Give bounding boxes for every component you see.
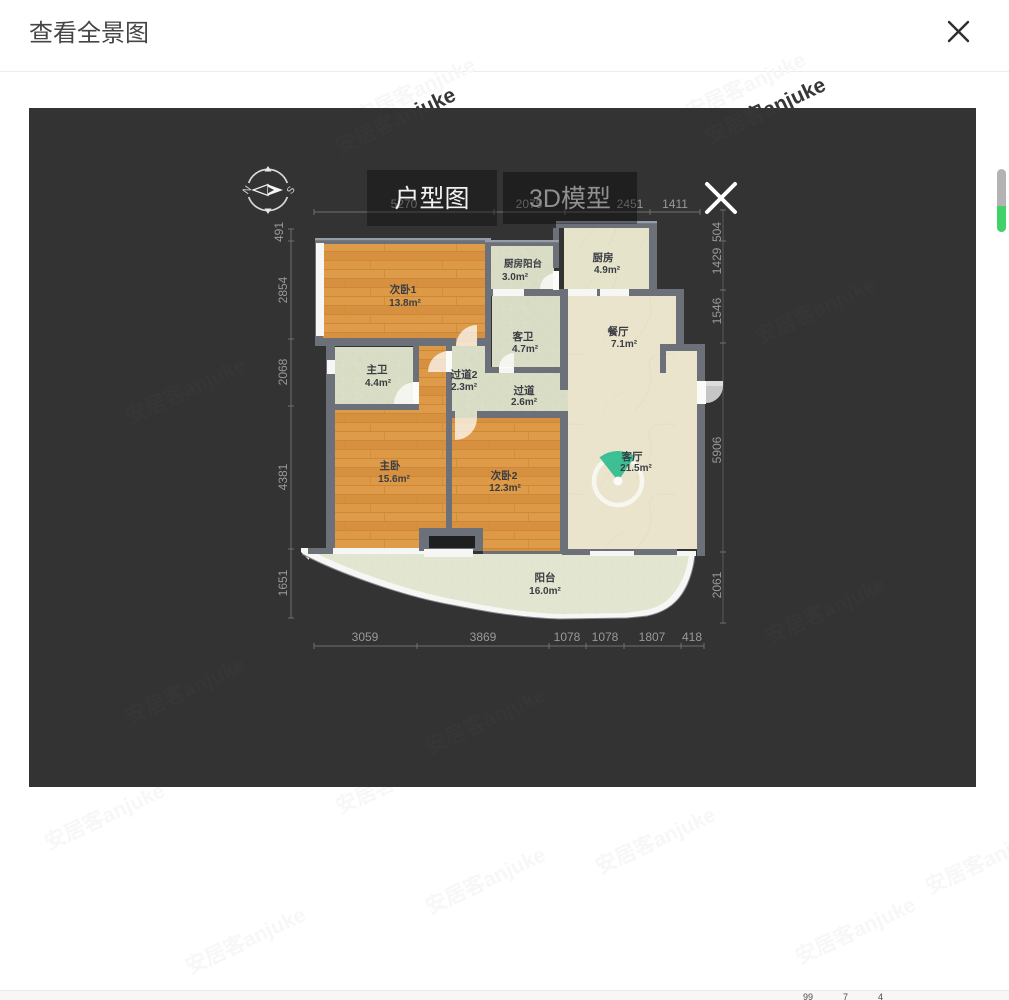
- svg-text:3869: 3869: [470, 630, 497, 644]
- svg-text:1411: 1411: [662, 197, 688, 211]
- svg-text:2068: 2068: [276, 358, 290, 385]
- svg-text:餐厅: 餐厅: [607, 325, 629, 338]
- svg-text:4381: 4381: [276, 463, 290, 490]
- svg-text:4.4m²: 4.4m²: [365, 378, 392, 389]
- svg-text:主卫: 主卫: [367, 363, 388, 376]
- svg-text:491: 491: [272, 222, 286, 242]
- svg-text:12.3m²: 12.3m²: [489, 483, 521, 494]
- svg-text:7.1m²: 7.1m²: [611, 339, 638, 350]
- svg-text:厨房: 厨房: [593, 251, 614, 264]
- svg-text:1429: 1429: [710, 247, 724, 274]
- svg-text:客厅: 客厅: [621, 450, 643, 463]
- svg-text:次卧1: 次卧1: [390, 283, 417, 296]
- svg-text:5906: 5906: [710, 436, 724, 463]
- svg-text:阳台: 阳台: [535, 571, 556, 584]
- svg-text:1078: 1078: [554, 630, 581, 644]
- svg-text:2.6m²: 2.6m²: [511, 397, 538, 408]
- svg-text:99: 99: [803, 992, 813, 1000]
- svg-text:4: 4: [878, 992, 883, 1000]
- svg-text:7: 7: [843, 992, 848, 1000]
- svg-text:次卧2: 次卧2: [491, 469, 518, 482]
- svg-text:2854: 2854: [276, 276, 290, 303]
- svg-text:4.7m²: 4.7m²: [512, 344, 539, 355]
- svg-text:1807: 1807: [639, 630, 666, 644]
- svg-text:1546: 1546: [710, 297, 724, 324]
- svg-text:过道: 过道: [514, 384, 535, 397]
- svg-text:过道2: 过道2: [451, 368, 478, 381]
- svg-text:户型图: 户型图: [394, 185, 469, 213]
- svg-text:2.3m²: 2.3m²: [451, 382, 478, 393]
- svg-text:504: 504: [710, 222, 724, 242]
- svg-text:2061: 2061: [710, 571, 724, 598]
- svg-text:查看全景图: 查看全景图: [29, 20, 149, 47]
- svg-text:418: 418: [682, 630, 702, 644]
- svg-text:3.0m²: 3.0m²: [502, 272, 529, 283]
- svg-text:1651: 1651: [276, 569, 290, 596]
- svg-text:15.6m²: 15.6m²: [378, 474, 410, 485]
- svg-text:3D模型: 3D模型: [529, 185, 611, 213]
- svg-text:4.9m²: 4.9m²: [594, 265, 621, 276]
- svg-text:主卧: 主卧: [380, 459, 401, 472]
- svg-text:3059: 3059: [352, 630, 379, 644]
- svg-text:厨房阳台: 厨房阳台: [504, 258, 543, 270]
- svg-text:1078: 1078: [592, 630, 619, 644]
- svg-text:客卫: 客卫: [512, 330, 534, 343]
- svg-text:16.0m²: 16.0m²: [529, 586, 561, 597]
- svg-text:13.8m²: 13.8m²: [389, 298, 421, 309]
- svg-text:21.5m²: 21.5m²: [620, 463, 652, 474]
